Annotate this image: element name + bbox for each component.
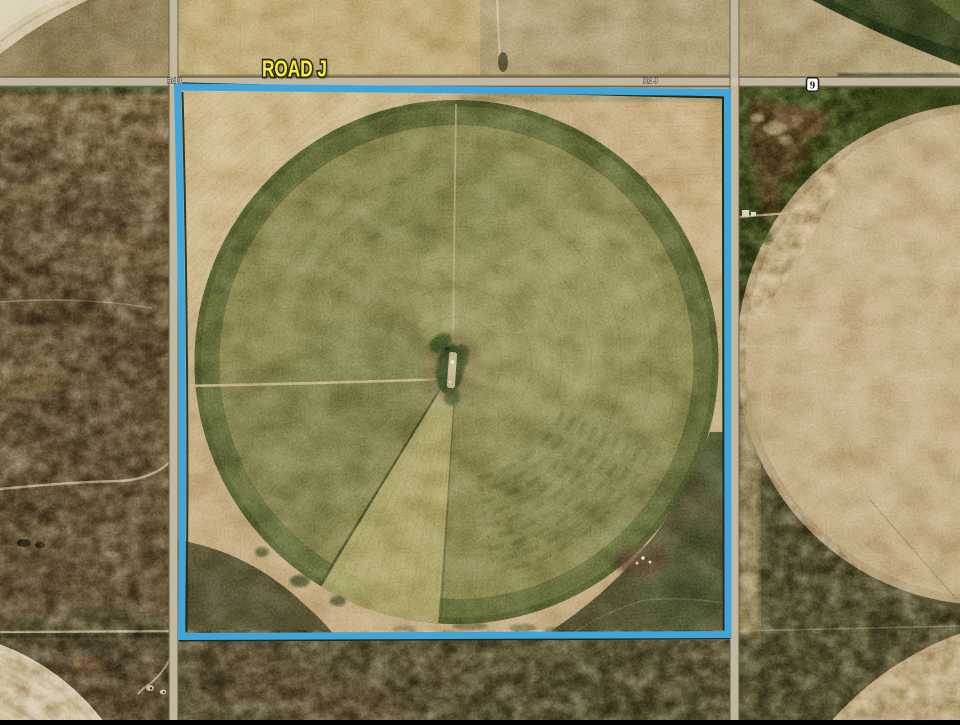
svg-text:ROAD J: ROAD J	[262, 56, 327, 82]
svg-text:Rd J: Rd J	[643, 78, 657, 85]
svg-text:Rd J: Rd J	[167, 78, 181, 85]
svg-text:9: 9	[810, 80, 815, 91]
